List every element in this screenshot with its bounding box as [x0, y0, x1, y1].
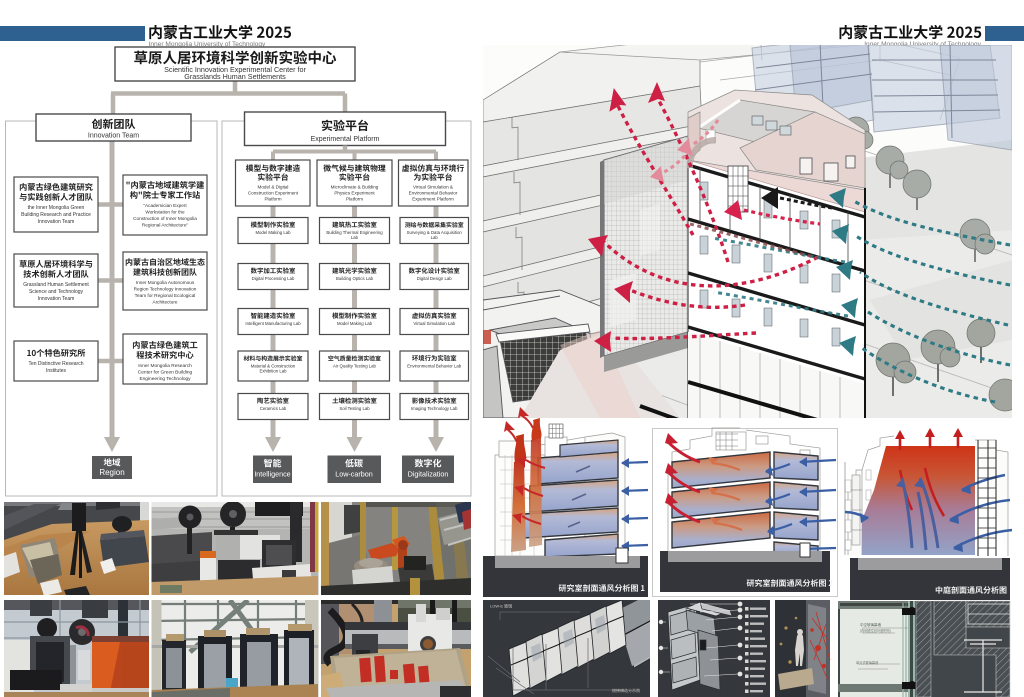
- svg-text:Building Research and Practice: Building Research and Practice: [21, 212, 91, 218]
- svg-text:Physics Experiment: Physics Experiment: [334, 191, 375, 196]
- svg-text:Building Optics Lab: Building Optics Lab: [336, 276, 374, 281]
- svg-text:Architecture: Architecture: [152, 300, 177, 305]
- svg-text:Team for Regional Ecological: Team for Regional Ecological: [135, 293, 196, 298]
- svg-text:Microclimate & Building: Microclimate & Building: [331, 185, 379, 190]
- svg-text:Virtual Simulation &: Virtual Simulation &: [413, 185, 453, 190]
- svg-text:Region: Region: [99, 468, 124, 477]
- svg-text:Innovation Team: Innovation Team: [38, 219, 75, 225]
- svg-text:Experimental Platform: Experimental Platform: [311, 136, 380, 143]
- svg-text:Construction Experiment: Construction Experiment: [248, 191, 299, 196]
- svg-text:Experiment Platform: Experiment Platform: [412, 197, 454, 202]
- svg-text:Platform: Platform: [346, 197, 363, 202]
- svg-text:Platform: Platform: [264, 197, 281, 202]
- svg-text:Ten Distinctive Research: Ten Distinctive Research: [28, 361, 83, 367]
- svg-text:Inner Mongolia Research: Inner Mongolia Research: [138, 363, 192, 369]
- svg-text:Model & Digital: Model & Digital: [258, 185, 289, 190]
- svg-text:Model Making Lab: Model Making Lab: [255, 230, 291, 235]
- svg-text:Environmental Behavior: Environmental Behavior: [409, 191, 458, 196]
- svg-text:(内侧透空百叶遮阳帘): (内侧透空百叶遮阳帘): [860, 628, 891, 633]
- svg-text:Digital Design Lab: Digital Design Lab: [417, 276, 452, 281]
- svg-text:"Academician Expert: "Academician Expert: [143, 203, 187, 208]
- svg-text:中空玻璃幕墙: 中空玻璃幕墙: [860, 622, 881, 627]
- svg-text:Model Making Lab: Model Making Lab: [337, 321, 373, 326]
- svg-text:Science and Technology: Science and Technology: [29, 289, 84, 295]
- svg-text:Inner Mongolia Autonomous: Inner Mongolia Autonomous: [136, 280, 195, 285]
- svg-text:Virtual Simulation Lab: Virtual Simulation Lab: [413, 321, 455, 326]
- svg-text:Grassland Human Settlement: Grassland Human Settlement: [23, 282, 89, 288]
- svg-text:Intelligent Manufacturing Lab: Intelligent Manufacturing Lab: [245, 321, 301, 326]
- svg-text:Environmental Behavior Lab: Environmental Behavior Lab: [407, 364, 462, 369]
- svg-text:Soil Testing Lab: Soil Testing Lab: [339, 406, 370, 411]
- svg-text:Exhibition Lab: Exhibition Lab: [260, 369, 288, 374]
- svg-text:the Inner Mongolia Green: the Inner Mongolia Green: [28, 205, 85, 211]
- svg-text:Region Technology Innovation: Region Technology Innovation: [134, 287, 197, 292]
- svg-text:单元式玻璃幕墙: 单元式玻璃幕墙: [856, 660, 879, 665]
- svg-text:Workstation for the: Workstation for the: [145, 210, 185, 215]
- svg-text:Innovation Team: Innovation Team: [88, 133, 139, 140]
- svg-text:Grasslands Human Settlements: Grasslands Human Settlements: [184, 72, 286, 81]
- svg-text:Innovation Team: Innovation Team: [38, 296, 75, 302]
- svg-text:LOW-E 玻璃: LOW-E 玻璃: [490, 603, 512, 609]
- svg-text:Digital Processing Lab: Digital Processing Lab: [252, 276, 295, 281]
- svg-text:Lab: Lab: [431, 235, 439, 240]
- svg-text:Institutes: Institutes: [46, 368, 67, 374]
- svg-text:Air Quality Testing Lab: Air Quality Testing Lab: [333, 364, 377, 369]
- svg-text:Center for Green Building: Center for Green Building: [138, 370, 193, 376]
- svg-text:Digitalization: Digitalization: [408, 470, 449, 479]
- svg-text:Imaging Technology Lab: Imaging Technology Lab: [411, 406, 458, 411]
- svg-text:Ceramics Lab: Ceramics Lab: [260, 406, 287, 411]
- svg-text:Regional Architecture": Regional Architecture": [142, 223, 189, 228]
- svg-text:Engineering Technology: Engineering Technology: [139, 376, 191, 382]
- svg-text:Lab: Lab: [351, 235, 359, 240]
- svg-text:Construction of Inner Mongolia: Construction of Inner Mongolia: [133, 216, 197, 221]
- svg-text:Low-carbon: Low-carbon: [335, 470, 373, 479]
- svg-text:Intelligence: Intelligence: [254, 470, 290, 479]
